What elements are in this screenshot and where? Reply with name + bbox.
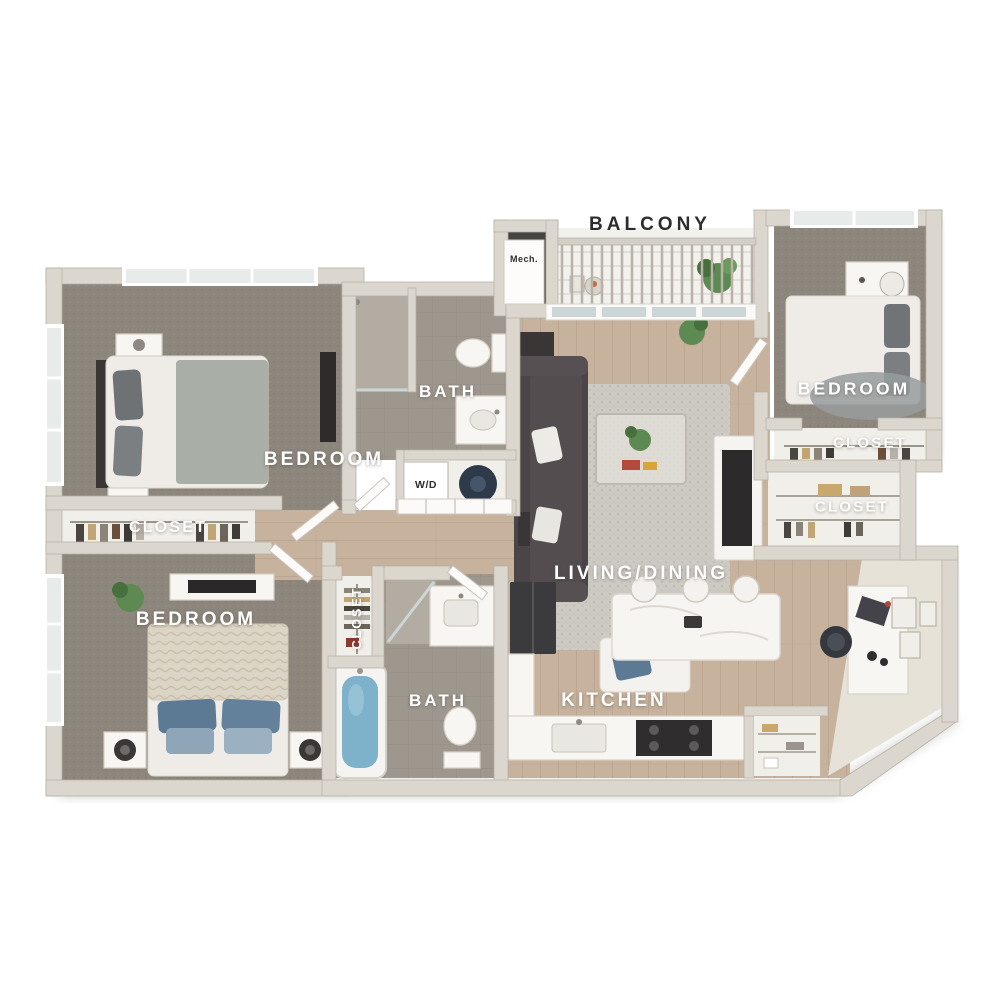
- side-table: [516, 332, 554, 356]
- bedroom-bottom-left-label: BEDROOM: [136, 609, 256, 631]
- bedroom-right-label: BEDROOM: [798, 379, 910, 400]
- stove: [636, 720, 712, 756]
- counter-left: [508, 654, 534, 720]
- tv-console-bottom-left: [170, 574, 274, 600]
- bed-right: [786, 296, 934, 420]
- closet-left-label: CLOSET: [129, 519, 207, 537]
- bathtub: [334, 664, 386, 778]
- kitchen-island: [612, 576, 780, 660]
- bed-bottom-left: [148, 624, 288, 776]
- closet-right-upper-label: CLOSET: [833, 435, 907, 452]
- door-bath-upper: [354, 478, 390, 511]
- dresser-tv-top-left: [320, 352, 336, 442]
- floorplan-image: BALCONY Mech. BATH BEDROOM CLOSET BEDROO…: [0, 0, 1000, 1000]
- hall-console: [518, 512, 530, 546]
- coffee-table: [596, 414, 686, 484]
- mech-label: Mech.: [510, 254, 538, 264]
- fridge: [510, 582, 556, 654]
- pantry: [744, 706, 828, 778]
- vanity-upper: [456, 396, 510, 444]
- balcony-label: BALCONY: [589, 214, 711, 236]
- bath-upper-label: BATH: [419, 382, 477, 402]
- window-bedroom-top-left-side: [44, 324, 64, 486]
- desk-chair: [820, 626, 852, 658]
- mech-door: [504, 240, 544, 304]
- kitchen-label: KITCHEN: [561, 690, 666, 712]
- laundry-label: W/D: [415, 479, 437, 491]
- closet-right-lower-label: CLOSET: [815, 499, 889, 516]
- sliding-glass-door: [546, 304, 756, 320]
- shower-upper-floor: [350, 294, 410, 390]
- living-dining-label: LIVING/DINING: [554, 563, 728, 585]
- window-bedroom-right-top: [790, 208, 918, 228]
- kitchen-sink: [552, 719, 606, 752]
- bedroom-top-left-label: BEDROOM: [264, 449, 384, 471]
- closet-linen-label: CLOSET: [350, 587, 364, 650]
- bath-lower-label: BATH: [409, 691, 467, 711]
- bifold-doors-laundry: [398, 499, 512, 514]
- window-bedroom-top-left-top: [122, 266, 318, 286]
- bed-top-left: [96, 356, 268, 488]
- window-bedroom-bottom-left-side: [44, 574, 64, 726]
